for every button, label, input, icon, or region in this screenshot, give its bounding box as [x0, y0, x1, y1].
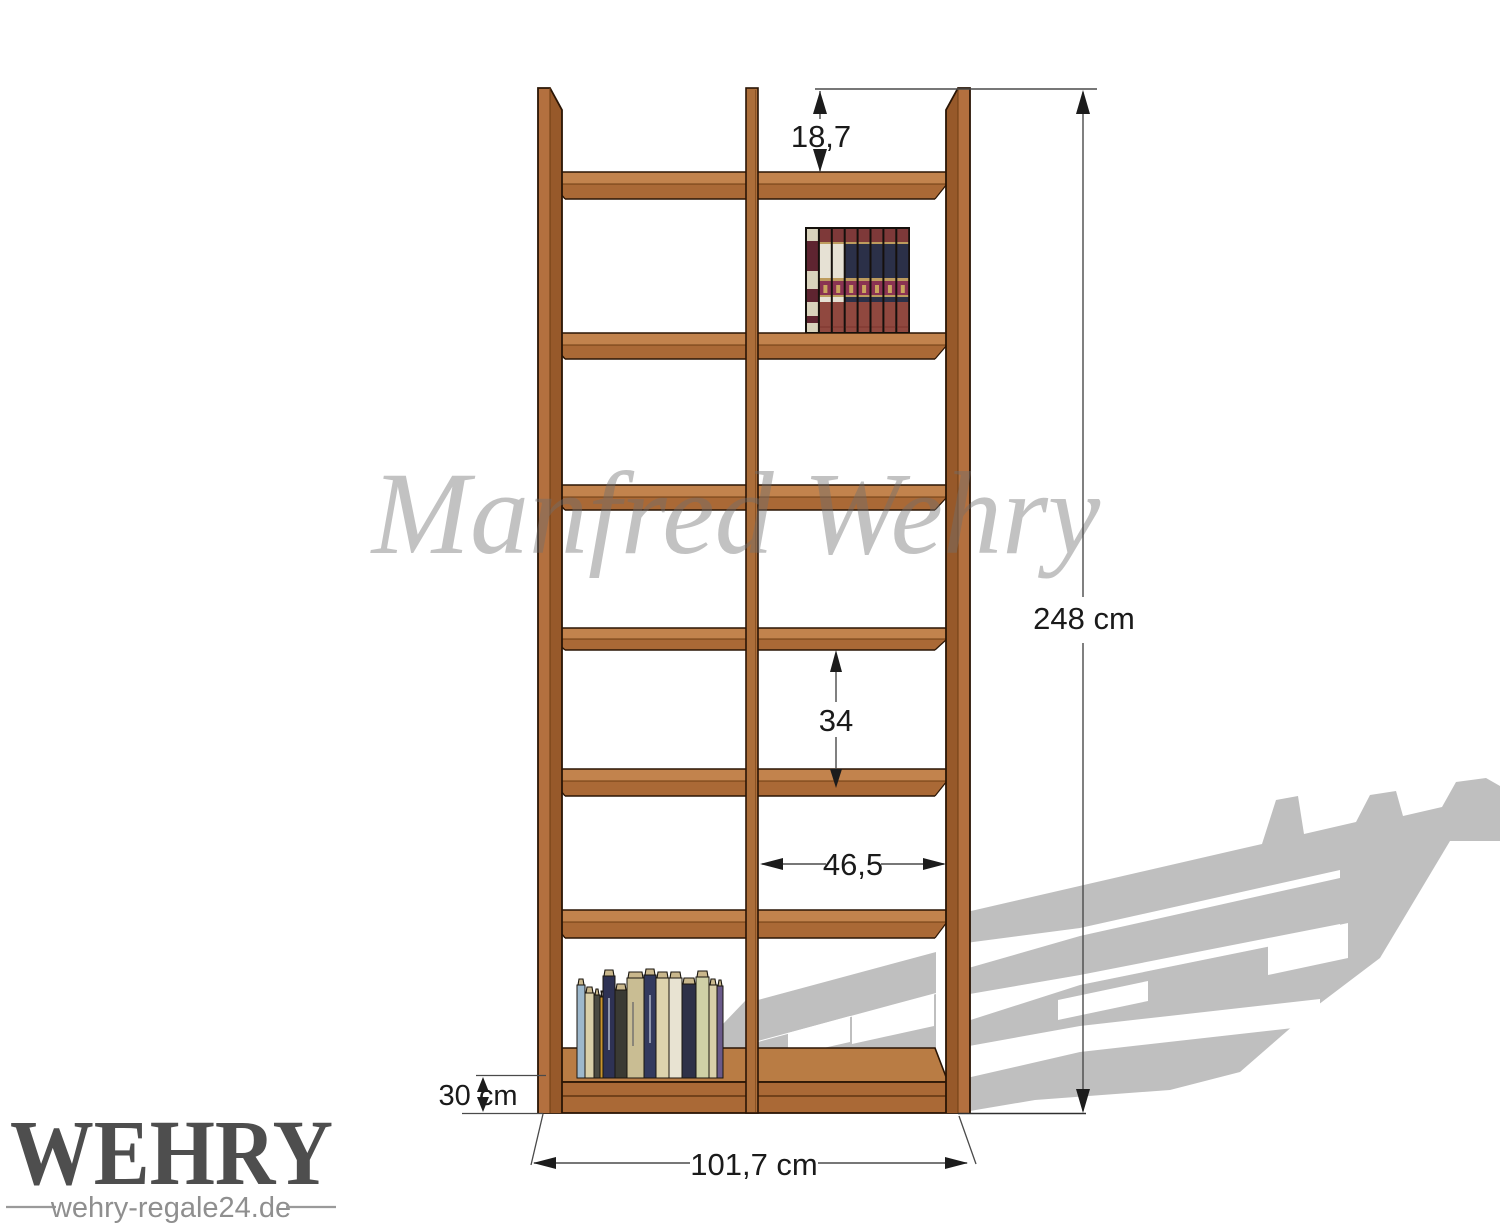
svg-text:34: 34 — [819, 703, 853, 738]
svg-text:30 cm: 30 cm — [439, 1080, 518, 1112]
svg-text:wehry-regale24.de: wehry-regale24.de — [50, 1192, 291, 1224]
svg-text:101,7 cm: 101,7 cm — [690, 1147, 818, 1182]
svg-text:WEHRY: WEHRY — [10, 1102, 333, 1205]
svg-text:Manfred Wehry: Manfred Wehry — [370, 448, 1101, 579]
svg-text:18,7: 18,7 — [791, 119, 851, 154]
svg-text:248 cm: 248 cm — [1033, 601, 1135, 636]
svg-text:46,5: 46,5 — [823, 847, 883, 882]
